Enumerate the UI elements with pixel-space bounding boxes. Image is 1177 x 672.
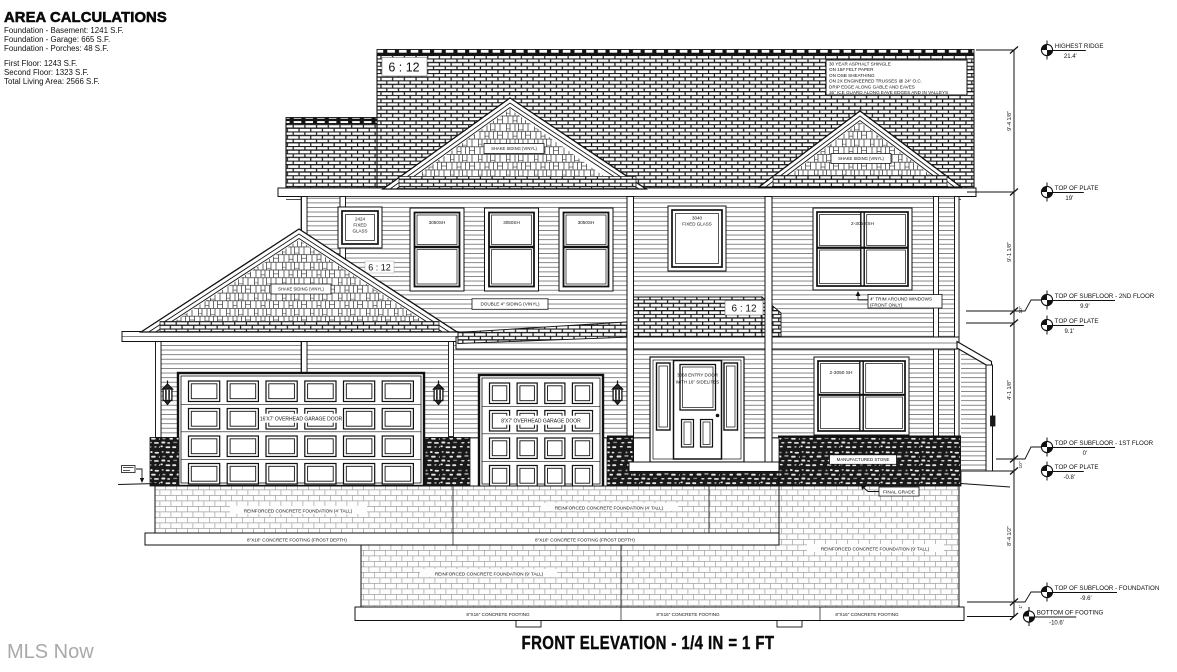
svg-text:First Floor: 1243 S.F.: First Floor: 1243 S.F. (4, 59, 77, 68)
svg-text:9.1': 9.1' (1065, 329, 1075, 335)
svg-text:4'-1 1/8": 4'-1 1/8" (1007, 380, 1013, 400)
svg-text:16'X7' OVERHEAD GARAGE DOOR: 16'X7' OVERHEAD GARAGE DOOR (260, 417, 343, 423)
svg-text:1': 1' (1018, 605, 1024, 609)
svg-text:ON 2X ENGINEERED TRUSSES @ 24": ON 2X ENGINEERED TRUSSES @ 24" O.C. (829, 79, 922, 84)
svg-text:WITH 16" SIDELITES: WITH 16" SIDELITES (676, 380, 720, 385)
svg-text:2424: 2424 (355, 217, 366, 222)
svg-text:TOP OF SUBFLOOR - FOUNDATION: TOP OF SUBFLOOR - FOUNDATION (1055, 585, 1160, 592)
svg-text:21.4': 21.4' (1064, 54, 1077, 60)
svg-text:MANUFACTURED STONE: MANUFACTURED STONE (837, 457, 890, 462)
svg-text:-9.6': -9.6' (1080, 596, 1091, 602)
svg-text:TOP OF PLATE: TOP OF PLATE (1055, 185, 1099, 192)
svg-text:FIXED GLASS: FIXED GLASS (682, 222, 712, 227)
svg-text:8"X16" CONCRETE FOOTING (FROST: 8"X16" CONCRETE FOOTING (FROST DEPTH) (247, 538, 347, 543)
svg-text:2-3050 SH: 2-3050 SH (851, 221, 874, 227)
svg-text:8"X16" CONCRETE FOOTING: 8"X16" CONCRETE FOOTING (466, 612, 530, 617)
svg-text:6 : 12: 6 : 12 (731, 304, 756, 315)
svg-text:SHAKE SIDING (VINYL): SHAKE SIDING (VINYL) (838, 156, 884, 161)
svg-text:TOP OF PLATE: TOP OF PLATE (1055, 318, 1099, 325)
svg-text:GLASS: GLASS (352, 229, 367, 234)
svg-text:19': 19' (1065, 196, 1073, 202)
svg-text:FINAL GRADE: FINAL GRADE (883, 490, 915, 496)
svg-text:FRONT ELEVATION - 1/4 IN = 1 F: FRONT ELEVATION - 1/4 IN = 1 FT (522, 633, 775, 654)
svg-text:Second Floor: 1323 S.F.: Second Floor: 1323 S.F. (4, 68, 89, 77)
svg-text:3050SH: 3050SH (578, 220, 595, 225)
svg-text:-10.6': -10.6' (1049, 621, 1064, 627)
svg-text:4" TRIM AROUND WINDOWS: 4" TRIM AROUND WINDOWS (870, 297, 932, 302)
svg-text:30 YEAR ASPHALT SHINGLE: 30 YEAR ASPHALT SHINGLE (829, 62, 891, 67)
svg-text:2-3050 SH: 2-3050 SH (830, 370, 853, 376)
svg-text:6 : 12: 6 : 12 (368, 263, 391, 273)
svg-text:SHAKE SIDING (VINYL): SHAKE SIDING (VINYL) (491, 146, 537, 151)
svg-text:9'-4 1/8": 9'-4 1/8" (1007, 111, 1013, 131)
svg-text:ON 15# FELT PAPER: ON 15# FELT PAPER (829, 67, 874, 72)
svg-text:3050SH: 3050SH (503, 220, 520, 225)
svg-text:REINFORCED CONCRETE FOUNDATION: REINFORCED CONCRETE FOUNDATION (4' TALL) (244, 509, 353, 514)
svg-text:TOP OF SUBFLOOR - 1ST FLOOR: TOP OF SUBFLOOR - 1ST FLOOR (1055, 440, 1154, 447)
svg-text:6 : 12: 6 : 12 (388, 61, 419, 75)
svg-text:DOUBLE 4" SIDING (VINYL): DOUBLE 4" SIDING (VINYL) (480, 302, 540, 307)
svg-text:3050SH: 3050SH (429, 220, 446, 225)
svg-text:FIXED: FIXED (353, 223, 367, 228)
svg-text:8"X16" CONCRETE FOOTING: 8"X16" CONCRETE FOOTING (656, 612, 720, 617)
svg-text:AREA CALCULATIONS: AREA CALCULATIONS (4, 10, 167, 26)
svg-text:Total Living Area: 2566 S.F.: Total Living Area: 2566 S.F. (4, 77, 100, 86)
svg-text:SHAKE SIDING (VINYL): SHAKE SIDING (VINYL) (278, 287, 324, 292)
svg-text:DRIP EDGE ALONG GABLE AND EAVE: DRIP EDGE ALONG GABLE AND EAVES (829, 84, 915, 89)
svg-text:REINFORCED CONCRETE FOUNDATION: REINFORCED CONCRETE FOUNDATION (9' TALL) (435, 572, 544, 577)
svg-text:TOP OF SUBFLOOR - 2ND FLOOR: TOP OF SUBFLOOR - 2ND FLOOR (1055, 293, 1155, 300)
svg-text:8'-4 1/2": 8'-4 1/2" (1007, 526, 1013, 546)
svg-text:REINFORCED CONCRETE FOUNDATION: REINFORCED CONCRETE FOUNDATION (9' TALL) (821, 547, 930, 552)
svg-text:TOP OF PLATE: TOP OF PLATE (1055, 464, 1099, 471)
svg-text:8"X16" CONCRETE FOOTING (FROST: 8"X16" CONCRETE FOOTING (FROST DEPTH) (535, 538, 635, 543)
svg-text:REINFORCED CONCRETE FOUNDATION: REINFORCED CONCRETE FOUNDATION (4' TALL) (555, 506, 664, 511)
svg-text:Foundation - Garage: 665 S.F.: Foundation - Garage: 665 S.F. (4, 35, 110, 44)
svg-text:BOTTOM OF FOOTING: BOTTOM OF FOOTING (1037, 610, 1104, 617)
svg-text:3040: 3040 (692, 216, 703, 221)
svg-text:Foundation - Basement: 1241 S.: Foundation - Basement: 1241 S.F. (4, 26, 124, 35)
svg-text:Foundation - Porches: 48 S.F.: Foundation - Porches: 48 S.F. (4, 44, 108, 53)
svg-text:10": 10" (1018, 461, 1024, 468)
svg-text:(FRONT ONLY): (FRONT ONLY) (870, 303, 903, 308)
svg-text:10": 10" (1018, 306, 1024, 313)
svg-text:8'X7' OVERHEAD GARAGE DOOR: 8'X7' OVERHEAD GARAGE DOOR (501, 419, 581, 425)
svg-text:-0.8': -0.8' (1064, 475, 1075, 481)
svg-text:36" ICE GUARD ALONG EAVE EDGES: 36" ICE GUARD ALONG EAVE EDGES AND IN VA… (829, 90, 948, 95)
svg-text:9.9': 9.9' (1080, 304, 1090, 310)
svg-text:8"X16" CONCRETE FOOTING: 8"X16" CONCRETE FOOTING (835, 612, 899, 617)
svg-text:3068 ENTRY DOOR: 3068 ENTRY DOOR (677, 373, 719, 378)
svg-text:HIGHEST RIDGE: HIGHEST RIDGE (1055, 43, 1104, 50)
svg-text:9'-1 1/8": 9'-1 1/8" (1007, 242, 1013, 262)
svg-text:0': 0' (1083, 451, 1087, 457)
svg-text:MLS Now: MLS Now (7, 641, 94, 663)
svg-text:ON OSB SHEATHING: ON OSB SHEATHING (829, 73, 875, 78)
